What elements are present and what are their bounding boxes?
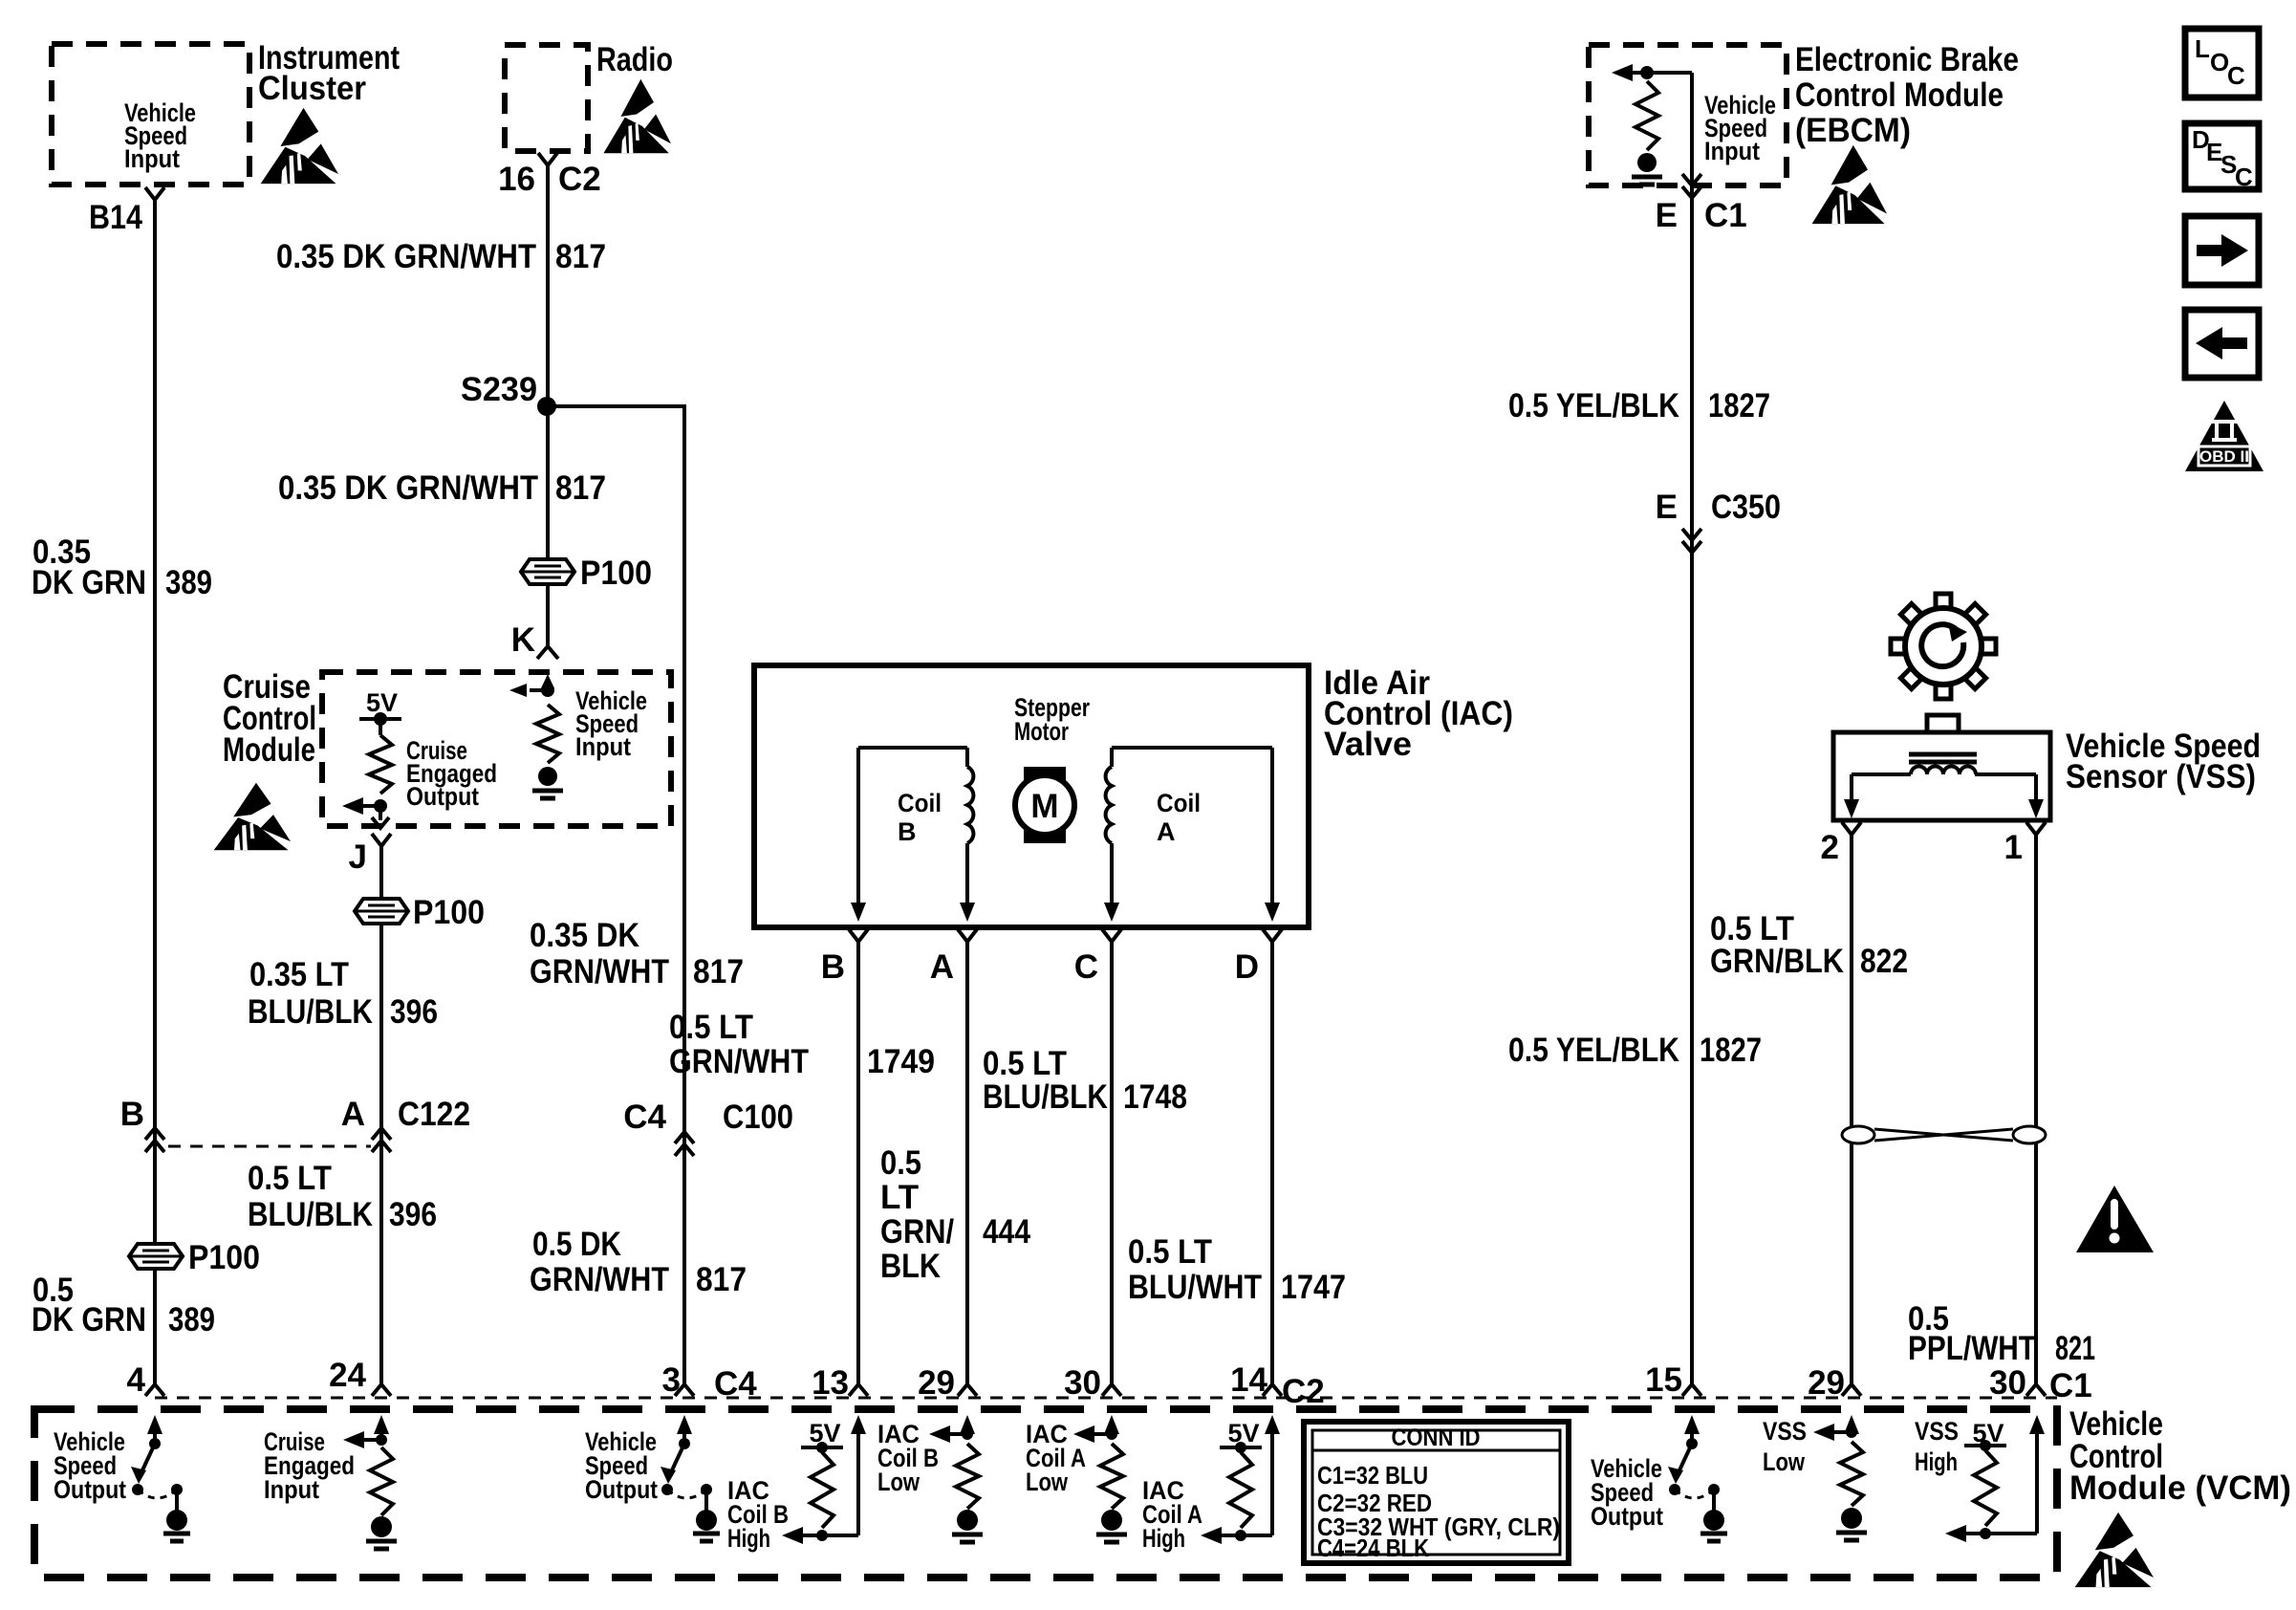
svg-text:C: C xyxy=(1074,948,1098,986)
svg-text:29: 29 xyxy=(1808,1364,1845,1402)
svg-text:M: M xyxy=(1030,788,1058,825)
svg-text:817: 817 xyxy=(693,953,744,990)
svg-text:CONN ID: CONN ID xyxy=(1392,1425,1481,1451)
svg-text:Output: Output xyxy=(585,1475,658,1504)
svg-text:817: 817 xyxy=(555,238,606,275)
svg-text:C1: C1 xyxy=(2049,1367,2092,1404)
svg-text:VSS: VSS xyxy=(1763,1417,1807,1446)
svg-text:D: D xyxy=(1235,948,1259,986)
svg-text:0.5 YEL/BLK: 0.5 YEL/BLK xyxy=(1508,387,1679,424)
svg-text:(EBCM): (EBCM) xyxy=(1795,112,1911,149)
svg-text:1748: 1748 xyxy=(1123,1078,1187,1116)
svg-text:0.5 LT: 0.5 LT xyxy=(248,1160,332,1197)
svg-text:30: 30 xyxy=(1989,1364,2026,1402)
svg-text:A: A xyxy=(341,1096,365,1133)
svg-text:29: 29 xyxy=(918,1364,955,1402)
svg-text:A: A xyxy=(930,948,954,986)
svg-text:Electronic Brake: Electronic Brake xyxy=(1795,41,2019,78)
svg-text:1747: 1747 xyxy=(1281,1269,1346,1306)
svg-text:0.35 DK: 0.35 DK xyxy=(530,917,639,954)
svg-text:0.35 DK GRN/WHT: 0.35 DK GRN/WHT xyxy=(278,469,538,507)
svg-text:BLU/BLK: BLU/BLK xyxy=(983,1078,1108,1116)
svg-text:Sensor (VSS): Sensor (VSS) xyxy=(2066,758,2256,795)
svg-text:E: E xyxy=(1656,489,1678,526)
svg-text:1827: 1827 xyxy=(1708,387,1770,424)
svg-text:30: 30 xyxy=(1064,1364,1101,1402)
svg-text:BLU/BLK: BLU/BLK xyxy=(248,1196,373,1233)
svg-text:396: 396 xyxy=(390,993,438,1031)
svg-text:4: 4 xyxy=(127,1361,146,1399)
svg-text:817: 817 xyxy=(555,469,606,507)
svg-text:0.5 LT: 0.5 LT xyxy=(983,1045,1067,1082)
svg-text:0.5: 0.5 xyxy=(880,1144,921,1182)
svg-text:Module (VCM): Module (VCM) xyxy=(2069,1469,2291,1507)
svg-text:24: 24 xyxy=(329,1357,366,1394)
svg-text:1749: 1749 xyxy=(867,1043,935,1080)
svg-text:B: B xyxy=(120,1096,144,1133)
svg-text:Input: Input xyxy=(1704,137,1760,165)
svg-text:GRN/WHT: GRN/WHT xyxy=(669,1043,809,1080)
svg-text:Module: Module xyxy=(223,731,315,769)
svg-text:A: A xyxy=(1157,817,1176,846)
svg-text:1: 1 xyxy=(2004,829,2023,866)
svg-text:Output: Output xyxy=(1591,1502,1663,1531)
svg-text:0.5 YEL/BLK: 0.5 YEL/BLK xyxy=(1508,1032,1679,1069)
svg-text:BLU/WHT: BLU/WHT xyxy=(1128,1269,1262,1306)
svg-text:15: 15 xyxy=(1645,1361,1682,1399)
svg-text:821: 821 xyxy=(2055,1330,2095,1367)
svg-text:DK GRN: DK GRN xyxy=(32,564,146,601)
svg-text:B14: B14 xyxy=(89,199,142,236)
svg-text:GRN/WHT: GRN/WHT xyxy=(530,953,669,990)
svg-text:C1=32 BLU: C1=32 BLU xyxy=(1317,1461,1428,1490)
svg-text:High: High xyxy=(1142,1524,1185,1553)
svg-text:C100: C100 xyxy=(723,1099,793,1136)
svg-text:Output: Output xyxy=(406,782,479,811)
svg-text:C122: C122 xyxy=(398,1096,470,1133)
svg-text:High: High xyxy=(727,1524,770,1553)
svg-text:0.35 LT: 0.35 LT xyxy=(249,956,349,993)
svg-text:LT: LT xyxy=(880,1179,919,1216)
svg-text:VSS: VSS xyxy=(1915,1417,1959,1446)
svg-text:Input: Input xyxy=(124,144,180,173)
svg-text:3: 3 xyxy=(662,1361,681,1399)
svg-text:C4: C4 xyxy=(623,1099,666,1136)
svg-text:0.5 LT: 0.5 LT xyxy=(1128,1233,1212,1271)
svg-text:BLK: BLK xyxy=(880,1248,941,1285)
svg-text:B: B xyxy=(821,948,845,986)
svg-text:13: 13 xyxy=(812,1364,849,1402)
svg-text:0.35 DK GRN/WHT: 0.35 DK GRN/WHT xyxy=(276,238,536,275)
svg-text:PPL/WHT: PPL/WHT xyxy=(1908,1330,2036,1367)
svg-text:OBD II: OBD II xyxy=(2199,447,2249,466)
svg-text:C: C xyxy=(2235,163,2253,191)
svg-text:Low: Low xyxy=(1026,1468,1069,1496)
svg-text:389: 389 xyxy=(168,1301,215,1338)
svg-text:Coil: Coil xyxy=(1157,789,1201,817)
svg-text:High: High xyxy=(1915,1447,1958,1476)
svg-text:14: 14 xyxy=(1230,1361,1267,1399)
svg-text:C350: C350 xyxy=(1711,489,1781,526)
svg-text:L: L xyxy=(2195,34,2210,63)
svg-text:BLU/BLK: BLU/BLK xyxy=(248,993,373,1031)
svg-text:P100: P100 xyxy=(188,1239,260,1276)
svg-text:C2: C2 xyxy=(1282,1373,1325,1410)
svg-text:C2: C2 xyxy=(558,161,601,198)
svg-text:Valve: Valve xyxy=(1324,726,1412,763)
svg-text:GRN/BLK: GRN/BLK xyxy=(1710,943,1844,980)
svg-text:Input: Input xyxy=(575,732,631,761)
svg-text:822: 822 xyxy=(1860,943,1908,980)
svg-text:396: 396 xyxy=(389,1196,437,1233)
svg-text:GRN/WHT: GRN/WHT xyxy=(530,1261,669,1298)
svg-text:817: 817 xyxy=(696,1261,747,1298)
svg-text:Control Module: Control Module xyxy=(1795,76,2004,114)
svg-text:16: 16 xyxy=(498,161,535,198)
svg-text:Low: Low xyxy=(877,1468,921,1496)
svg-text:S239: S239 xyxy=(461,371,537,408)
svg-text:2: 2 xyxy=(1821,829,1839,866)
svg-text:K: K xyxy=(511,621,535,659)
svg-text:Low: Low xyxy=(1763,1447,1806,1476)
svg-text:0.5 DK: 0.5 DK xyxy=(532,1226,621,1263)
svg-text:C4=24 BLK: C4=24 BLK xyxy=(1317,1534,1429,1562)
svg-text:B: B xyxy=(898,817,917,846)
svg-text:C: C xyxy=(2227,61,2245,90)
svg-text:Radio: Radio xyxy=(596,41,673,78)
svg-text:1827: 1827 xyxy=(1700,1032,1762,1069)
svg-text:P100: P100 xyxy=(413,894,485,931)
svg-text:444: 444 xyxy=(983,1213,1030,1251)
svg-text:J: J xyxy=(349,838,367,876)
svg-text:0.5 LT: 0.5 LT xyxy=(669,1009,753,1046)
svg-text:DK GRN: DK GRN xyxy=(32,1301,146,1338)
svg-text:Motor: Motor xyxy=(1014,717,1069,746)
svg-text:C1: C1 xyxy=(1704,197,1747,234)
svg-text:Cluster: Cluster xyxy=(258,70,366,107)
svg-text:E: E xyxy=(1656,197,1678,234)
svg-text:P100: P100 xyxy=(580,555,652,592)
svg-text:389: 389 xyxy=(165,564,212,601)
svg-text:GRN/: GRN/ xyxy=(880,1213,954,1251)
svg-text:Input: Input xyxy=(264,1475,319,1504)
svg-text:C4: C4 xyxy=(714,1365,757,1403)
svg-text:Coil: Coil xyxy=(898,789,942,817)
svg-text:Output: Output xyxy=(54,1475,126,1504)
